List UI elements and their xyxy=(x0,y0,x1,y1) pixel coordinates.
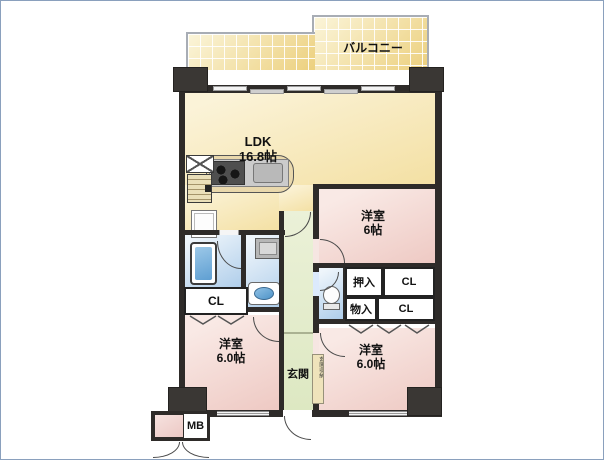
entrance-storage-note: 玄関収納 xyxy=(312,354,324,404)
genkan-label: 玄関 xyxy=(287,369,309,382)
wall-bath-divider xyxy=(241,235,246,289)
bathtub-icon xyxy=(190,242,217,285)
folding-door-marks-west xyxy=(188,314,246,326)
door-arc-mb-right xyxy=(182,442,209,458)
wall-right xyxy=(435,85,442,417)
bedroom-sw-size: 6.0帖 xyxy=(217,352,246,366)
meter-box-label-cell: MB xyxy=(184,414,207,438)
closet-ne: CL xyxy=(383,267,435,297)
meter-box-cell xyxy=(155,415,183,437)
oshiire-label: 押入 xyxy=(353,274,375,290)
closet-monoire: 物入 xyxy=(345,297,377,321)
balcony-area-left xyxy=(186,32,315,70)
balcony-label: バルコニー xyxy=(343,42,403,56)
window-bedroom-se xyxy=(349,411,409,416)
entrance-storage-label: 玄関収納 xyxy=(318,356,324,378)
pillar-top-right xyxy=(409,67,444,92)
refrigerator-space-icon xyxy=(186,155,214,173)
balcony-sliding-window xyxy=(213,86,395,94)
bedroom-ne-name: 洋室 xyxy=(361,210,385,224)
counter-post xyxy=(205,185,211,192)
door-arc-front-door xyxy=(284,416,311,440)
meter-box-label: MB xyxy=(187,420,204,432)
door-gap-bedroom-ne xyxy=(313,239,319,263)
bedroom-sw-label: 洋室 6.0帖 xyxy=(217,338,246,366)
door-arc-mb-left xyxy=(153,442,180,458)
ldk-label: LDK 16.8帖 xyxy=(239,135,277,165)
pillar-top-left xyxy=(173,67,208,92)
toilet-tank-icon xyxy=(323,303,340,310)
wall-ne-top xyxy=(313,184,435,189)
genkan-step-line xyxy=(284,332,313,334)
bedroom-se-size: 6.0帖 xyxy=(357,358,386,372)
kitchen-sink-icon xyxy=(253,163,283,183)
bedroom-sw-name: 洋室 xyxy=(217,338,246,352)
closet-east-label: CL xyxy=(399,303,414,315)
ldk-name: LDK xyxy=(239,135,277,150)
closet-oshiire: 押入 xyxy=(345,267,383,297)
washbasin-icon xyxy=(248,282,280,305)
window-bedroom-sw xyxy=(217,411,269,416)
washing-machine-icon xyxy=(255,238,281,259)
closet-west-label: CL xyxy=(208,294,224,308)
bedroom-ne-label: 洋室 6帖 xyxy=(361,210,385,238)
pillar-bottom-right xyxy=(407,387,442,416)
folding-door-marks-east xyxy=(347,323,433,335)
wall-washroom-bottom xyxy=(245,307,284,312)
bedroom-ne-size: 6帖 xyxy=(361,224,385,238)
floor-plan: バルコニー CL xyxy=(0,0,604,460)
closet-west: CL xyxy=(184,287,248,315)
ldk-size: 16.8帖 xyxy=(239,150,277,165)
closet-east: CL xyxy=(377,297,435,321)
wall-left xyxy=(179,85,185,417)
door-gap-washroom xyxy=(219,230,239,235)
door-gap-toilet xyxy=(313,272,319,296)
pillar-bottom-left xyxy=(168,387,207,413)
bedroom-se-label: 洋室 6.0帖 xyxy=(357,344,386,372)
monoire-label: 物入 xyxy=(350,301,372,317)
bedroom-se-name: 洋室 xyxy=(357,344,386,358)
closet-ne-label: CL xyxy=(402,276,417,288)
